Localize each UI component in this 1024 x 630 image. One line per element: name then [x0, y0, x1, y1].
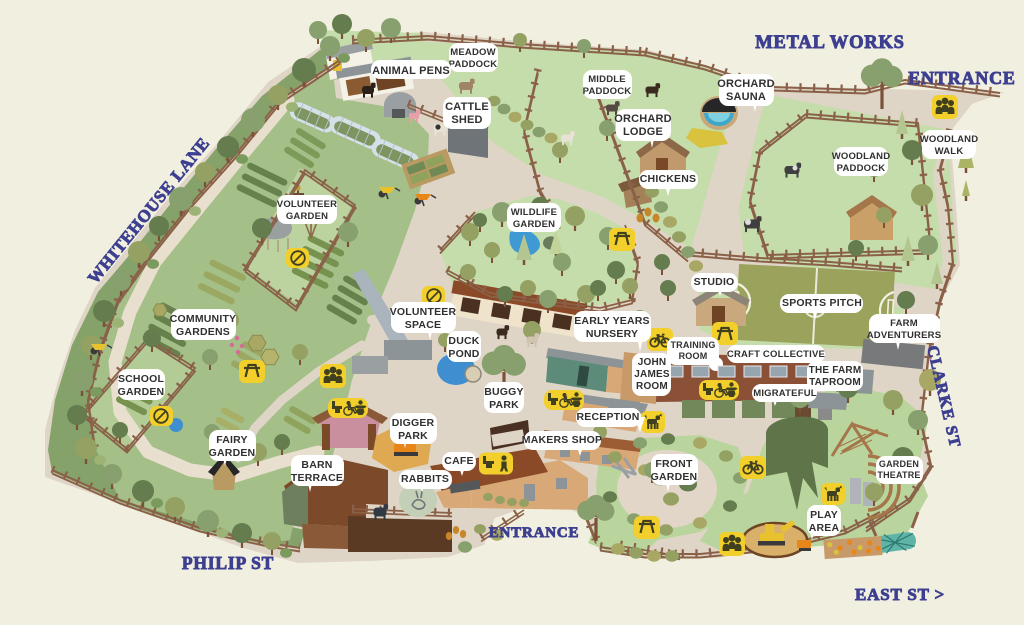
svg-text:METAL WORKS: METAL WORKS: [755, 33, 904, 53]
svg-text:LODGE: LODGE: [623, 126, 663, 138]
svg-text:FAIRY: FAIRY: [216, 434, 248, 446]
svg-text:PHILIP ST: PHILIP ST: [182, 553, 274, 573]
svg-text:MIGRATEFUL: MIGRATEFUL: [753, 388, 817, 399]
svg-text:BARN: BARN: [301, 459, 332, 471]
svg-text:NURSERY: NURSERY: [586, 328, 638, 340]
svg-text:TRAINING: TRAINING: [670, 340, 715, 350]
svg-text:GARDEN: GARDEN: [651, 471, 698, 483]
svg-text:ORCHARD: ORCHARD: [614, 113, 672, 125]
svg-text:WILDLIFE: WILDLIFE: [511, 207, 557, 218]
svg-text:CATTLE: CATTLE: [445, 101, 489, 113]
svg-text:ROOM: ROOM: [636, 381, 668, 392]
svg-text:PARK: PARK: [398, 430, 428, 442]
svg-text:VOLUNTEER: VOLUNTEER: [277, 199, 337, 210]
svg-text:TERRACE: TERRACE: [291, 472, 343, 484]
svg-text:STUDIO: STUDIO: [694, 276, 735, 288]
svg-text:ADVENTURERS: ADVENTURERS: [867, 330, 942, 341]
svg-text:MEADOW: MEADOW: [450, 47, 496, 58]
svg-text:CAFE: CAFE: [444, 455, 473, 467]
svg-text:GARDEN: GARDEN: [879, 459, 919, 469]
svg-text:THEATRE: THEATRE: [877, 470, 920, 480]
svg-text:RECEPTION: RECEPTION: [576, 411, 639, 423]
svg-text:SAUNA: SAUNA: [726, 91, 766, 103]
svg-text:SHED: SHED: [451, 114, 482, 126]
svg-text:GARDENS: GARDENS: [176, 326, 230, 338]
svg-text:PADDOCK: PADDOCK: [837, 163, 886, 174]
svg-text:PLAY: PLAY: [810, 509, 838, 521]
svg-text:PARK: PARK: [489, 399, 519, 411]
svg-text:BUGGY: BUGGY: [484, 386, 524, 398]
svg-text:EAST ST >: EAST ST >: [855, 585, 945, 604]
svg-text:DIGGER: DIGGER: [392, 417, 435, 429]
svg-text:MAKERS SHOP: MAKERS SHOP: [522, 434, 602, 446]
svg-text:POND: POND: [448, 348, 479, 360]
svg-text:GARDEN: GARDEN: [286, 211, 328, 222]
svg-text:VOLUNTEER: VOLUNTEER: [390, 306, 457, 318]
svg-text:SPORTS PITCH: SPORTS PITCH: [782, 297, 862, 309]
svg-text:ENTRANCE: ENTRANCE: [489, 525, 580, 541]
svg-text:SCHOOL: SCHOOL: [118, 373, 165, 385]
svg-text:FARM: FARM: [890, 318, 918, 329]
svg-text:COMMUNITY: COMMUNITY: [170, 313, 237, 325]
svg-text:PADDOCK: PADDOCK: [449, 59, 498, 70]
svg-text:WALK: WALK: [935, 146, 964, 157]
svg-text:AREA: AREA: [809, 522, 840, 534]
svg-text:EARLY YEARS: EARLY YEARS: [574, 315, 650, 327]
svg-text:TAPROOM: TAPROOM: [809, 377, 861, 388]
svg-text:MIDDLE: MIDDLE: [588, 74, 626, 85]
svg-text:WOODLAND: WOODLAND: [832, 151, 891, 162]
svg-text:ROOM: ROOM: [679, 351, 708, 361]
svg-text:ANIMAL PENS: ANIMAL PENS: [372, 65, 450, 77]
svg-text:GARDEN: GARDEN: [209, 447, 256, 459]
svg-text:CHICKENS: CHICKENS: [640, 173, 696, 185]
svg-text:GARDEN: GARDEN: [118, 386, 165, 398]
svg-text:RABBITS: RABBITS: [401, 473, 449, 485]
svg-text:DUCK: DUCK: [448, 335, 479, 347]
svg-text:GARDEN: GARDEN: [513, 219, 555, 230]
svg-text:JOHN: JOHN: [638, 357, 667, 368]
svg-text:ENTRANCE: ENTRANCE: [908, 68, 1015, 88]
svg-text:SPACE: SPACE: [405, 319, 441, 331]
svg-text:PADDOCK: PADDOCK: [583, 86, 632, 97]
svg-text:ORCHARD: ORCHARD: [717, 78, 775, 90]
svg-text:FRONT: FRONT: [655, 458, 693, 470]
svg-text:CRAFT COLLECTIVE: CRAFT COLLECTIVE: [727, 349, 825, 360]
svg-text:JAMES: JAMES: [634, 369, 670, 380]
svg-text:THE FARM: THE FARM: [809, 365, 862, 376]
svg-text:WOODLAND: WOODLAND: [920, 134, 979, 145]
